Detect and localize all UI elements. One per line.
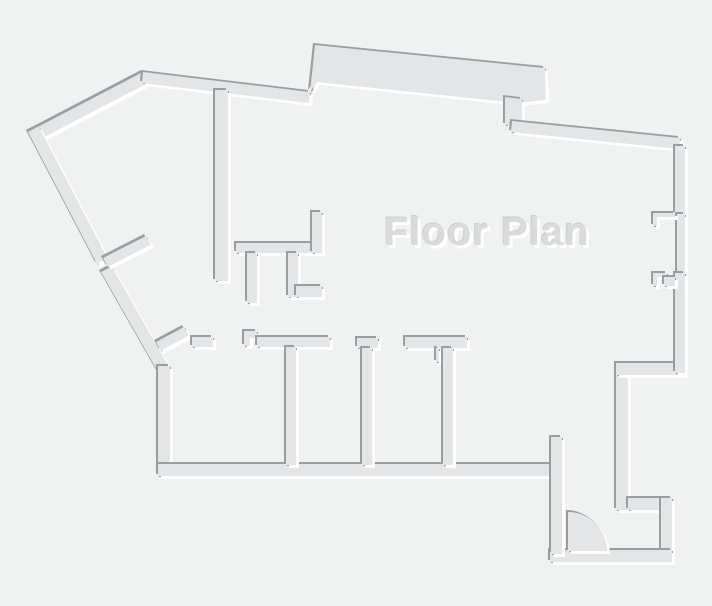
top-bump-wall (310, 45, 546, 103)
room-divider-w3 (443, 348, 453, 465)
header-h2-cap (244, 331, 257, 346)
interior-wall-h1 (236, 243, 322, 253)
outer-wall-left-vertical (158, 366, 170, 476)
interior-wall-vertical (215, 90, 228, 281)
outer-wall-left-upper-diagonal (28, 126, 108, 264)
entry-spur-wall (551, 437, 562, 554)
entry-bottom-wall (550, 550, 672, 562)
window-jamb-top (653, 213, 675, 226)
corner-stub-diagonal (156, 327, 189, 351)
outer-wall-left-lower-diagonal (101, 266, 169, 372)
floor-plan-drawing (0, 0, 712, 606)
outer-wall-top-right (511, 121, 680, 149)
door-jamb-diagonal (103, 236, 151, 267)
room-divider-w1 (286, 347, 296, 465)
right-wall-lower (675, 273, 685, 373)
right-jog-wall (616, 363, 685, 375)
interior-stub-b-arm (296, 286, 322, 297)
floor-plan-canvas: Floor Plan (0, 0, 712, 606)
room-divider-w2-cap (357, 338, 378, 348)
interior-stub-a (247, 253, 257, 303)
floor-plan-title: Floor Plan (384, 212, 590, 252)
right-wall-upper (675, 146, 685, 214)
interior-riser (312, 212, 322, 253)
header-h0 (192, 337, 213, 347)
header-h2 (257, 337, 330, 347)
room-divider-w2 (362, 348, 372, 465)
header-h3 (405, 337, 467, 348)
bottom-wall-main (158, 464, 554, 476)
room-divider-w3-jamb (436, 348, 439, 362)
bump-connector-wall (505, 97, 522, 125)
right-step-wall (616, 375, 628, 510)
window-jamb-bottom-fill (664, 277, 675, 286)
entry-door-swing (568, 512, 607, 551)
outer-wall-upper-left-diagonal (28, 72, 149, 143)
window-sill (677, 214, 685, 273)
